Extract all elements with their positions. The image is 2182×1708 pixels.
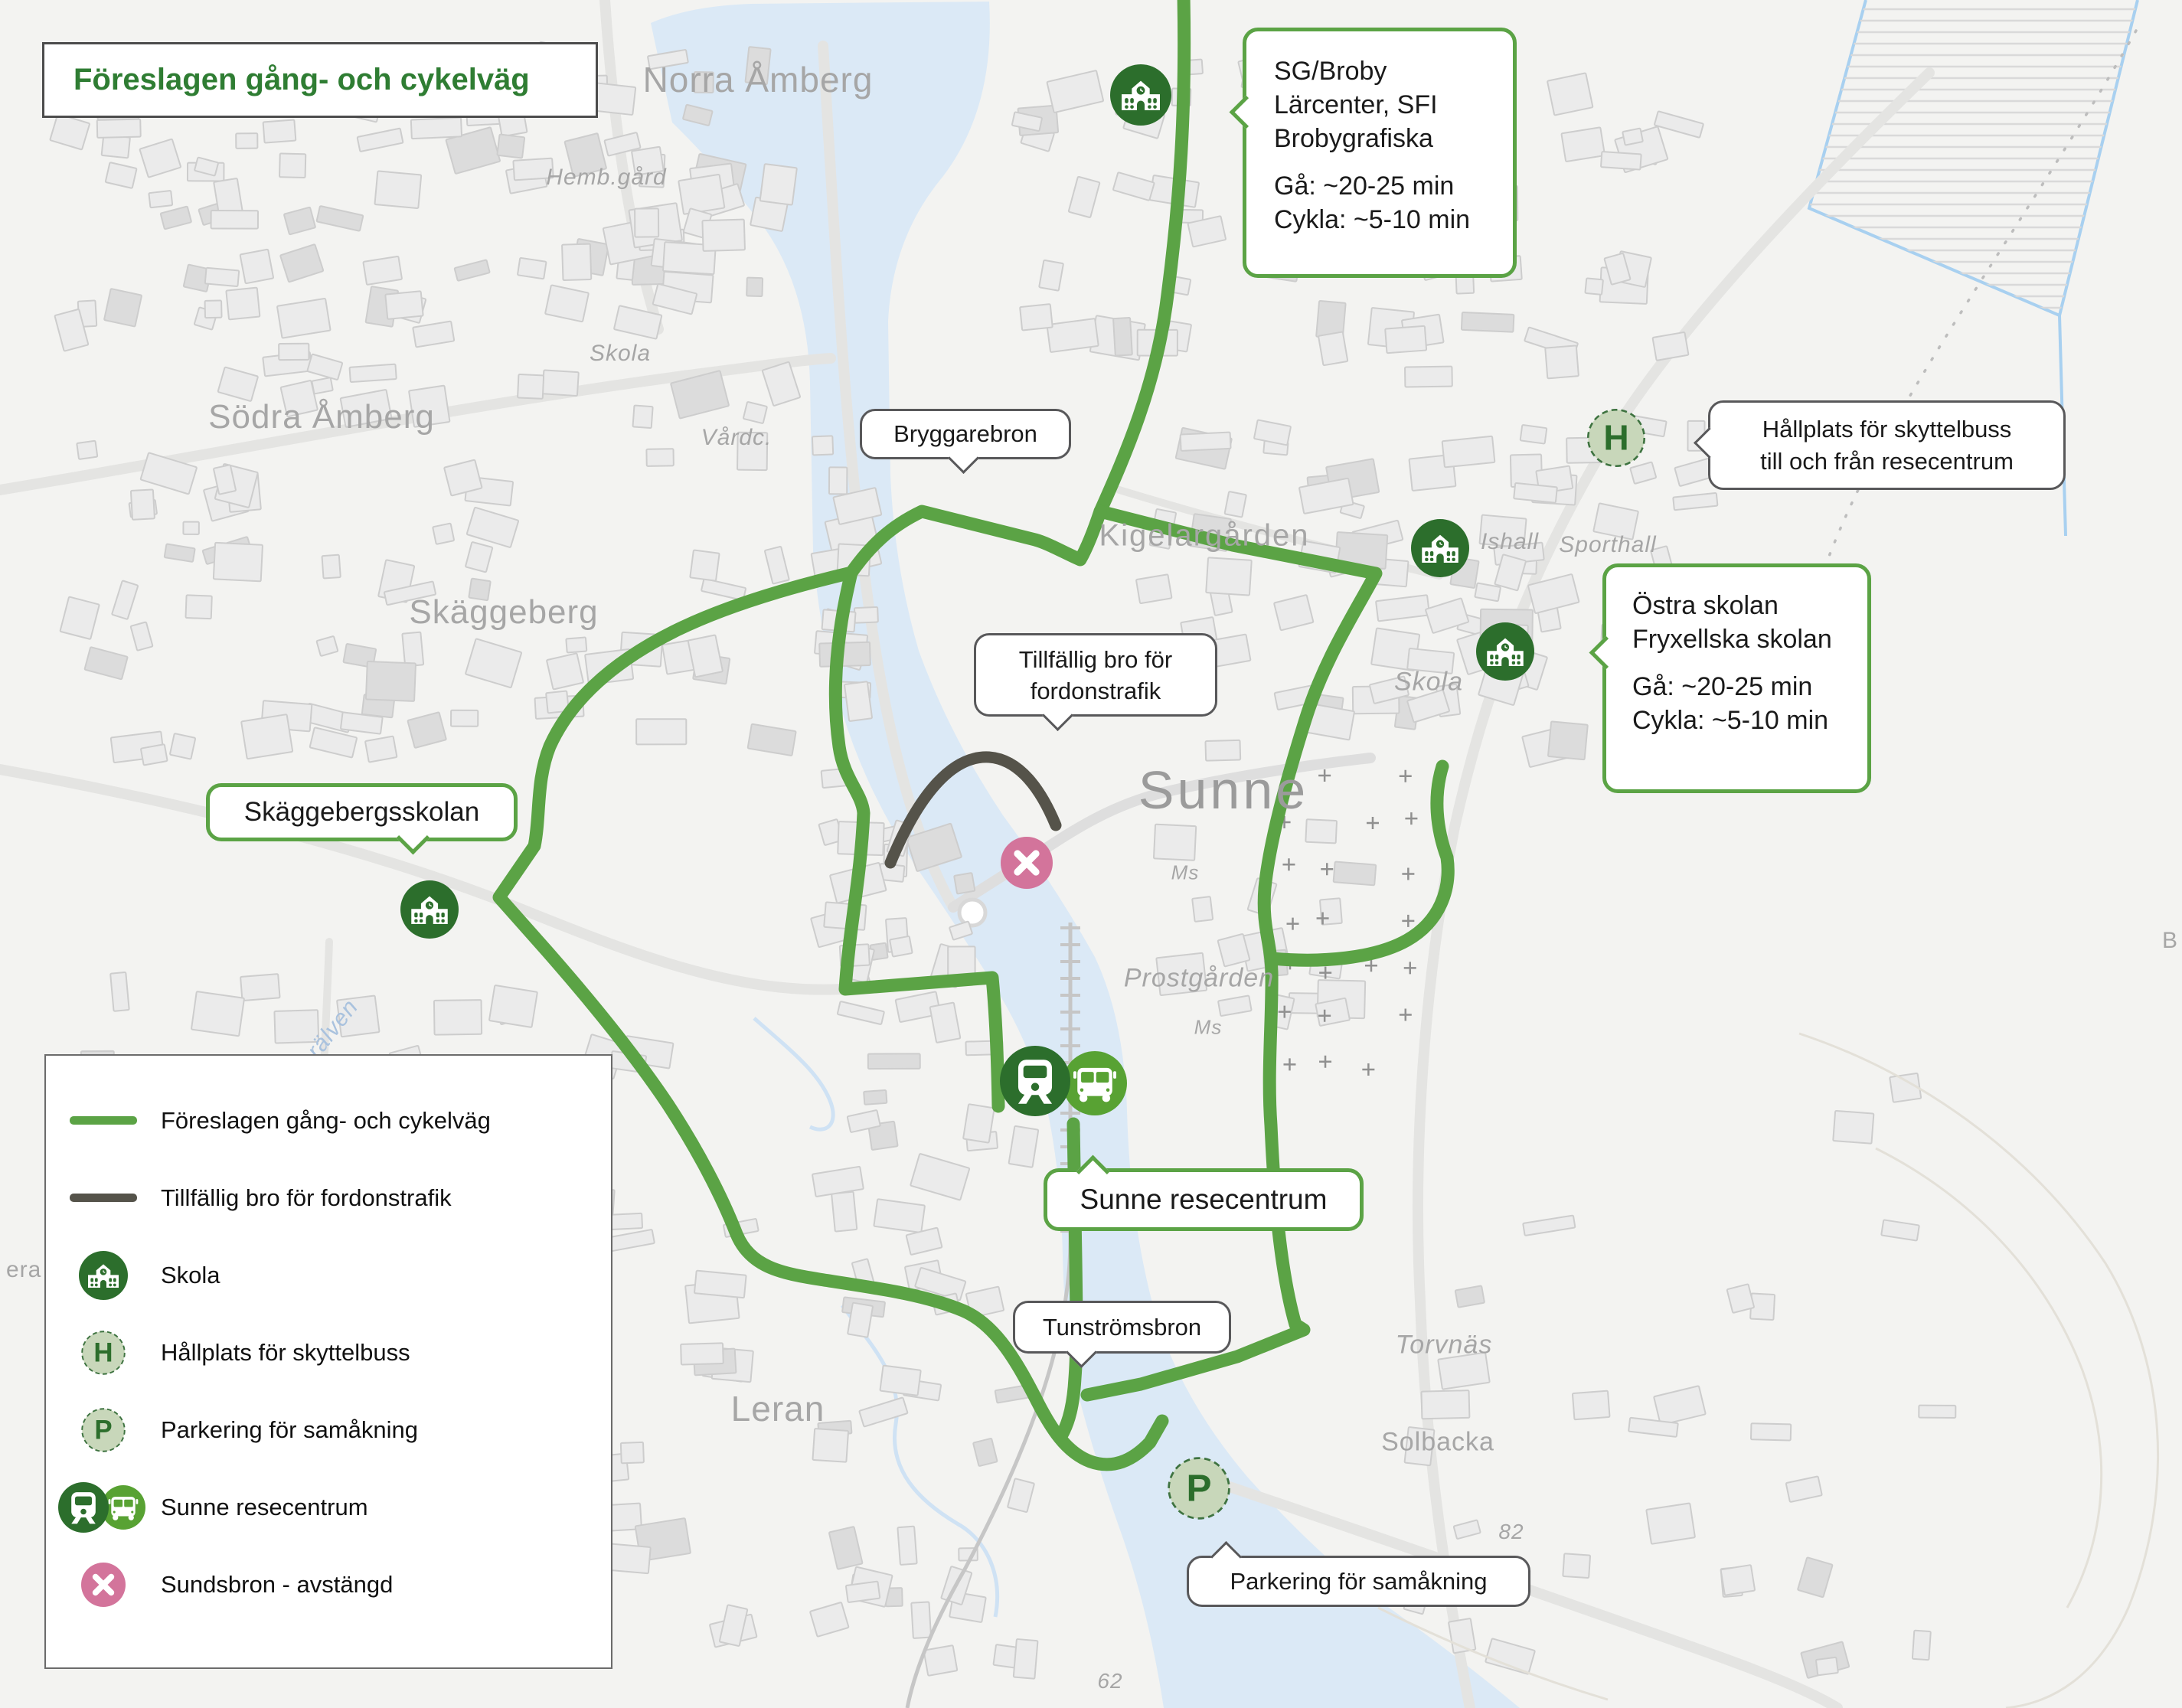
legend-label: Skola	[161, 1262, 220, 1289]
callout-line: Lärcenter, SFI	[1274, 88, 1505, 122]
map-label-sodra-amberg: Södra Åmberg	[208, 398, 435, 436]
walk-time: Gå: ~20-25 min	[1632, 670, 1860, 704]
carpool-parking-icon: P	[80, 1406, 127, 1454]
callout-label: Sunne resecentrum	[1080, 1184, 1328, 1216]
school-icon	[79, 1251, 128, 1300]
bus-icon	[1063, 1051, 1127, 1115]
callout-line: Brobygrafiska	[1274, 122, 1505, 155]
closed-bridge-icon	[1001, 837, 1053, 889]
walk-time: Gå: ~20-25 min	[1274, 169, 1505, 203]
map-label-prostgarden: Prostgården	[1124, 964, 1274, 994]
train-icon	[1000, 1046, 1070, 1116]
callout-line: Tillfällig bro för	[1019, 644, 1172, 675]
callout-label: Parkering för samåkning	[1230, 1568, 1488, 1595]
legend-row-shuttle-stop: H Hållplats för skyttelbuss	[46, 1314, 611, 1391]
page: { "title": "Föreslagen gång- och cykelvä…	[0, 0, 2182, 1708]
legend-label: Hållplats för skyttelbuss	[161, 1339, 410, 1367]
callout-sg-broby: SG/Broby Lärcenter, SFI Brobygrafiska Gå…	[1243, 28, 1517, 278]
callout-line: SG/Broby	[1274, 54, 1505, 88]
legend-row-bridge: Tillfällig bro för fordonstrafik	[46, 1159, 611, 1236]
map-label-82: 82	[1498, 1520, 1524, 1544]
bike-time: Cykla: ~5-10 min	[1274, 203, 1505, 237]
map-label-kigelargarden: Kigelargården	[1099, 519, 1309, 554]
callout-label: Skäggebergsskolan	[244, 797, 479, 828]
legend-row-route: Föreslagen gång- och cykelväg	[46, 1082, 611, 1159]
map-label-skola-east: Skola	[1394, 668, 1463, 697]
map-title-text: Föreslagen gång- och cykelväg	[73, 63, 530, 97]
callout-tillfallig-bro: Tillfällig bro för fordonstrafik	[974, 633, 1217, 717]
map-label-era-partial: era	[6, 1257, 41, 1283]
shuttle-bus-stop-icon: H	[80, 1329, 127, 1377]
bike-time: Cykla: ~5-10 min	[1632, 704, 1860, 737]
map-label-sporthall: Sporthall	[1559, 532, 1656, 558]
callout-parkering: Parkering för samåkning	[1187, 1556, 1530, 1607]
callout-line: Fryxellska skolan	[1632, 622, 1860, 656]
map-label-leran: Leran	[731, 1388, 825, 1429]
legend-label: Tillfällig bro för fordonstrafik	[161, 1184, 452, 1212]
callout-bryggarebron: Bryggarebron	[860, 409, 1071, 459]
roundabout	[959, 900, 985, 926]
legend-label: Sunne resecentrum	[161, 1494, 368, 1521]
map-label-b-partial: B	[2162, 928, 2178, 954]
map-label-vardc: Vårdc.	[701, 425, 773, 451]
legend: Föreslagen gång- och cykelväg Tillfällig…	[44, 1054, 612, 1669]
map-label-norra-amberg: Norra Åmberg	[643, 59, 874, 100]
map-label-skaggeberg: Skäggeberg	[409, 593, 598, 632]
school-icon	[1110, 64, 1171, 126]
route-line-swatch	[70, 1116, 137, 1125]
svg-text:H: H	[93, 1337, 113, 1367]
callout-tunstromsbron: Tunströmsbron	[1013, 1301, 1231, 1354]
map-label-sunne: Sunne	[1138, 759, 1308, 821]
legend-row-school: Skola	[46, 1236, 611, 1314]
callout-hallplats: Hållplats för skyttelbuss till och från …	[1708, 400, 2066, 490]
bridge-line-swatch	[70, 1194, 137, 1202]
map-label-hembgard: Hemb.gård	[546, 165, 666, 191]
callout-sunne-resecentrum: Sunne resecentrum	[1044, 1168, 1364, 1231]
legend-label: Sundsbron - avstängd	[161, 1571, 393, 1599]
callout-skaggebergsskolan: Skäggebergsskolan	[206, 783, 518, 841]
school-icon	[400, 880, 459, 939]
legend-row-parking: P Parkering för samåkning	[46, 1391, 611, 1468]
train-icon	[58, 1482, 109, 1533]
svg-text:P: P	[1186, 1468, 1211, 1510]
closed-bridge-icon	[81, 1563, 126, 1607]
map-label-ishall: Ishall	[1481, 529, 1539, 555]
shuttle-bus-stop-icon: H	[1585, 407, 1648, 469]
map-label-skola-top: Skola	[590, 341, 651, 367]
callout-line: till och från resecentrum	[1760, 446, 2014, 478]
callout-ostra-skolan: Östra skolan Fryxellska skolan Gå: ~20-2…	[1602, 563, 1871, 793]
legend-label: Föreslagen gång- och cykelväg	[161, 1107, 491, 1135]
legend-row-closed-bridge: Sundsbron - avstängd	[46, 1546, 611, 1623]
legend-row-resecentrum: Sunne resecentrum	[46, 1468, 611, 1546]
map-label-ms-upper: Ms	[1171, 861, 1200, 885]
svg-text:H: H	[1603, 417, 1628, 457]
map-label-solbacka: Solbacka	[1381, 1428, 1494, 1458]
map-label-62: 62	[1097, 1669, 1122, 1693]
map-title: Föreslagen gång- och cykelväg	[42, 42, 598, 118]
legend-label: Parkering för samåkning	[161, 1416, 418, 1444]
callout-line: Östra skolan	[1632, 589, 1860, 622]
callout-label: Tunströmsbron	[1043, 1314, 1201, 1341]
svg-text:P: P	[94, 1415, 112, 1445]
map-label-torvnas: Torvnäs	[1396, 1331, 1493, 1360]
callout-line: fordonstrafik	[1019, 675, 1172, 707]
school-icon	[1411, 519, 1469, 577]
school-icon	[1476, 622, 1534, 681]
carpool-parking-icon: P	[1165, 1455, 1233, 1522]
callout-line: Hållplats för skyttelbuss	[1760, 413, 2014, 446]
map-label-ms-lower: Ms	[1194, 1016, 1223, 1040]
